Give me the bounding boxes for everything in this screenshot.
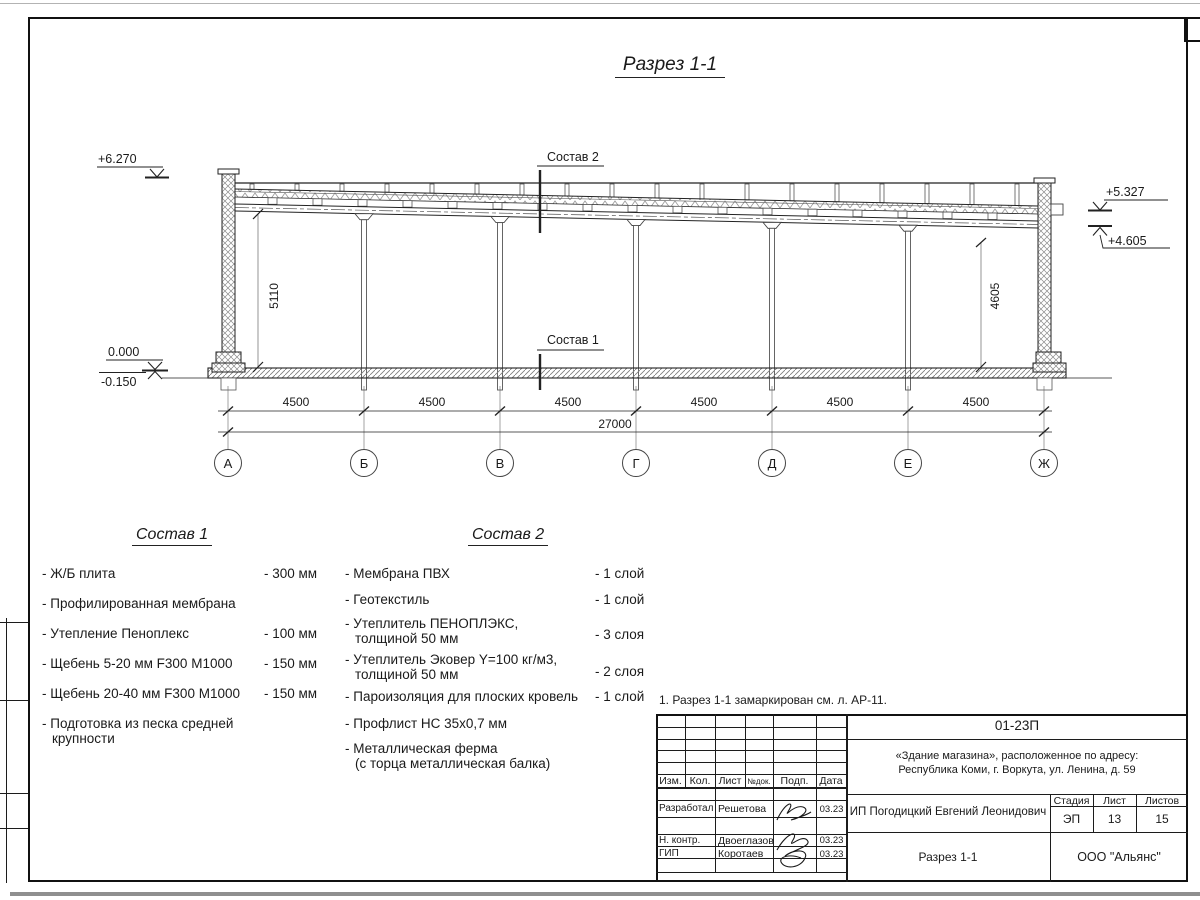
callout-sostav1: Состав 1 [547,333,599,347]
tb-date: 03.23 [817,835,846,846]
tb-col-izm: Изм. [656,775,685,787]
height-dim-right: 4605 [988,282,1002,309]
list-item: - Утеплитель Эковер Y=100 кг/м3, толщино… [345,652,603,682]
tb-line [846,832,1188,833]
list-item-value: - 150 мм [264,656,317,671]
list-item-value: - 300 мм [264,566,317,581]
signature-2 [777,834,808,867]
tb-line [656,750,846,751]
axis-label: Б [360,456,369,471]
tb-col-dok: №док. [745,777,773,786]
list-item: - Мембрана ПВХ [345,566,595,581]
elev-beam-right: +4.605 [1108,234,1147,248]
tb-line [1050,794,1051,882]
sostav2-title: Состав 2 [468,526,548,546]
list-item: - Геотекстиль [345,592,595,607]
bay-dim-label: 4500 [691,395,718,409]
tb-doc-number: 01-23П [846,718,1188,733]
tb-sheets-value: 15 [1136,812,1188,826]
list-item: - Щебень 20-40 мм F300 М1000 [42,686,267,701]
height-dim-left: 5110 [267,283,281,309]
elev-ground: -0.150 [101,375,136,389]
drawing-sheet: Разрез 1-1 Состав 2Состав 1 450045004500… [0,0,1200,900]
tb-role: Н. контр. [659,835,700,846]
list-item: - Профлист НС 35х0,7 мм [345,716,595,731]
tb-line [715,714,716,872]
bay-dim-label: 4500 [827,395,854,409]
elev-parapet-top: +6.270 [98,152,137,166]
tb-date: 03.23 [817,849,846,860]
list-item: - Утепление Пеноплекс [42,626,267,641]
bay-dim-label: 4500 [283,395,310,409]
tb-stage-label: Стадия [1050,795,1093,807]
list-item-value: - 1 слой [595,566,644,581]
tb-line [846,739,1188,740]
list-item: - Металлическая ферма (с торца металличе… [345,741,603,771]
axis-label: А [224,456,233,471]
signature-marks [771,798,819,878]
tb-line [656,762,846,763]
axis-label: Е [904,456,913,471]
axis-label: Д [768,456,777,471]
sostav1-title: Состав 1 [132,526,212,546]
building-structure [162,169,1112,390]
bay-dim-label: 4500 [963,395,990,409]
list-item: - Пароизоляция для плоских кровель [345,689,603,704]
tb-sheet-title: Разрез 1-1 [848,850,1048,864]
tb-company: ООО "Альянс" [1050,850,1188,864]
tb-role: Разработал [659,803,713,814]
tb-object-line2: Республика Коми, г. Воркута, ул. Ленина,… [848,764,1186,776]
list-item-value: - 3 слоя [595,627,644,642]
tb-sheet-label: Лист [1093,795,1136,807]
list-item: - Ж/Б плита [42,566,267,581]
tb-sheet-value: 13 [1093,812,1136,826]
tb-col-kol: Кол. [685,775,715,787]
margin-box-line [0,793,28,794]
section-drawing: Состав 2Состав 1 45004500450045004500450… [0,0,1200,520]
page-bottom-edge [10,892,1200,896]
signature-1 [777,804,811,820]
elev-roof-right: +5.327 [1106,185,1145,199]
list-item: - Подготовка из песка средней крупности [42,716,292,746]
list-item: - Утеплитель ПЕНОПЛЭКС, толщиной 50 мм [345,616,600,646]
margin-box-line [0,828,28,829]
tb-col-podp: Подп. [773,775,816,787]
tb-name: Коротаев [718,848,763,860]
list-item: - Щебень 5-20 мм F300 М1000 [42,656,267,671]
tb-col-data: Дата [816,775,846,787]
tb-col-list: Лист [715,775,745,787]
tb-line [656,787,846,789]
list-item-value: - 150 мм [264,686,317,701]
axis-bubbles: АБВГДЕЖ [215,450,1058,477]
tb-name: Двоеглазов [718,835,774,847]
tb-object-line1: «Здание магазина», расположенное по адре… [848,750,1186,762]
sheet-note: 1. Разрез 1-1 замаркирован см. л. АР-11. [659,693,887,707]
callout-sostav2: Состав 2 [547,150,599,164]
margin-box-line [6,618,7,883]
tb-client: ИП Погодицкий Евгений Леонидович [848,806,1048,818]
tb-date: 03.23 [817,804,846,815]
list-item-value: - 100 мм [264,626,317,641]
tb-role: ГИП [659,848,679,859]
list-item-value: - 1 слой [595,592,644,607]
bay-dim-label: 4500 [555,395,582,409]
list-item-value: - 1 слой [595,689,644,704]
axis-label: В [496,456,505,471]
list-item: - Профилированная мембрана [42,596,282,611]
axis-label: Ж [1038,456,1050,471]
tb-name: Решетова [718,803,766,815]
callout-labels: Состав 2Состав 1 [537,150,604,390]
axis-label: Г [632,456,639,471]
title-block: Изм. Кол. Лист №док. Подп. Дата Разработ… [656,714,1188,882]
tb-stage-value: ЭП [1050,812,1093,826]
tb-line [656,727,846,728]
tb-line [656,739,846,740]
total-dim-label: 27000 [598,417,632,431]
bay-dim-label: 4500 [419,395,446,409]
list-item-value: - 2 слоя [595,664,644,679]
tb-sheets-label: Листов [1136,795,1188,807]
margin-box-line [0,700,28,701]
elev-floor-zero: 0.000 [108,345,139,359]
margin-box-line [0,622,28,623]
